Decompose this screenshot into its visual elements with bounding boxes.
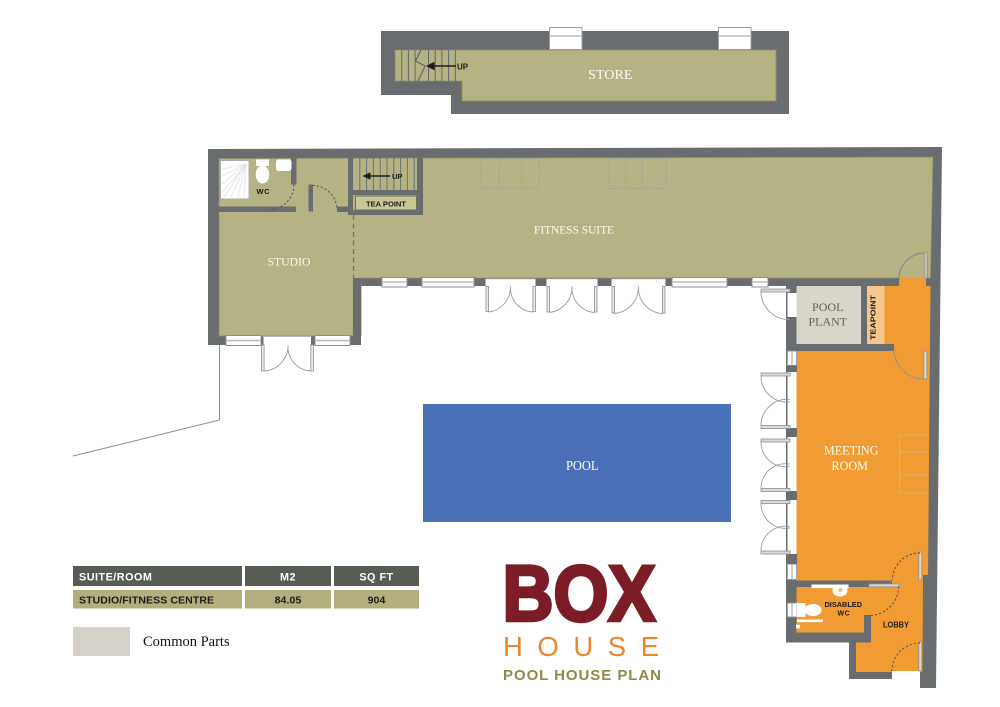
svg-text:SUITE/ROOM: SUITE/ROOM bbox=[79, 572, 152, 584]
svg-text:SQ FT: SQ FT bbox=[359, 572, 393, 584]
svg-text:FITNESS SUITE: FITNESS SUITE bbox=[534, 223, 614, 237]
svg-text:84.05: 84.05 bbox=[275, 595, 302, 607]
svg-text:POOL: POOL bbox=[812, 300, 844, 314]
svg-text:TEA POINT: TEA POINT bbox=[366, 200, 406, 209]
svg-text:M2: M2 bbox=[280, 572, 296, 584]
svg-text:BOX: BOX bbox=[503, 550, 656, 638]
svg-text:Common Parts: Common Parts bbox=[143, 634, 230, 650]
svg-text:DISABLED: DISABLED bbox=[825, 602, 863, 609]
svg-text:904: 904 bbox=[368, 595, 386, 607]
svg-text:STORE: STORE bbox=[588, 67, 633, 82]
svg-text:LOBBY: LOBBY bbox=[883, 621, 910, 630]
svg-text:ROOM: ROOM bbox=[832, 459, 869, 473]
svg-text:UP: UP bbox=[457, 63, 469, 72]
svg-text:WC: WC bbox=[838, 611, 851, 618]
svg-text:UP: UP bbox=[392, 172, 402, 181]
svg-text:PLANT: PLANT bbox=[809, 315, 848, 329]
svg-text:POOL HOUSE PLAN: POOL HOUSE PLAN bbox=[503, 667, 661, 684]
svg-text:WC: WC bbox=[257, 187, 271, 196]
svg-text:STUDIO: STUDIO bbox=[268, 255, 311, 269]
svg-text:POOL: POOL bbox=[566, 458, 599, 473]
svg-text:TEAPOINT: TEAPOINT bbox=[869, 295, 878, 340]
svg-text:MEETING: MEETING bbox=[824, 444, 879, 458]
svg-text:STUDIO/FITNESS CENTRE: STUDIO/FITNESS CENTRE bbox=[79, 595, 214, 607]
